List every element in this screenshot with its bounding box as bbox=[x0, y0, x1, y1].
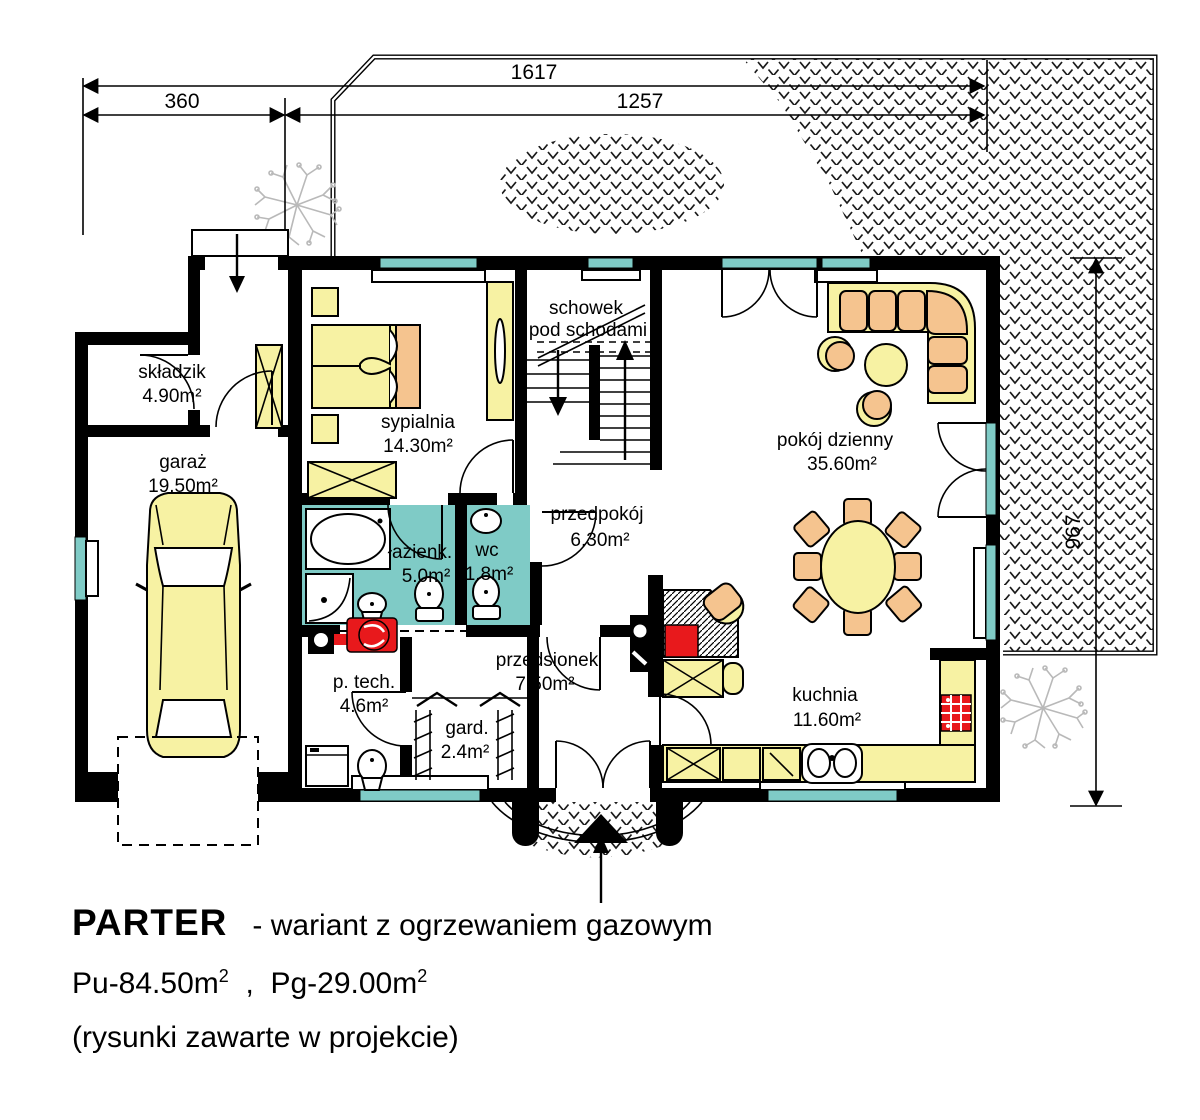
plan-title-level: PARTER bbox=[72, 902, 227, 943]
hall-cabinet bbox=[256, 345, 282, 428]
room-label-skladzik: składzik bbox=[138, 362, 206, 383]
room-area-przedsionek: 7.50m² bbox=[515, 674, 574, 695]
armchair bbox=[857, 391, 891, 426]
room-label-pokoj-dzienny: pokój dzienny bbox=[777, 430, 894, 451]
room-label-kuchnia: kuchnia bbox=[792, 685, 858, 706]
kitchen-sink bbox=[802, 744, 862, 783]
room-area-pokoj-dzienny: 35.60m² bbox=[807, 454, 877, 475]
room-area-skladzik: 4.90m² bbox=[142, 386, 201, 407]
room-label-schowek: schowek bbox=[549, 298, 623, 319]
shower bbox=[306, 574, 353, 623]
usable-area-value: Pu-84.50m bbox=[72, 967, 219, 1000]
tree-icon bbox=[1001, 666, 1087, 748]
room-label-przedpokoj: przedpokój bbox=[551, 504, 644, 525]
room-area-gard: 2.4m² bbox=[441, 742, 490, 763]
room-label-sypialnia: sypialnia bbox=[381, 412, 455, 433]
floor-plan-page: 1617 360 1257 967 bbox=[0, 0, 1200, 1120]
dishwasher bbox=[763, 748, 800, 780]
dimension-top-total: 1617 bbox=[511, 61, 558, 84]
room-label-przedsionek: przedsionek bbox=[496, 650, 599, 671]
room-area-lazienka: 5.0m² bbox=[402, 566, 451, 587]
cooktop bbox=[941, 695, 971, 731]
plan-note: (rysunki zawarte w projekcie) bbox=[72, 1021, 713, 1055]
garden-hatch-ellipse bbox=[500, 134, 724, 234]
room-area-kuchnia: 11.60m² bbox=[793, 710, 861, 731]
dimension-top-left: 360 bbox=[164, 90, 199, 113]
room-area-garaz: 19.50m² bbox=[148, 476, 218, 497]
room-label-lazienka: łazienk. bbox=[388, 542, 452, 563]
bed bbox=[312, 325, 420, 408]
plan-footer: PARTER - wariant z ogrzewaniem gazowym P… bbox=[72, 902, 713, 1055]
room-area-wc: 1.8m² bbox=[465, 564, 514, 585]
area-separator: , bbox=[245, 967, 253, 1000]
car-icon bbox=[136, 493, 251, 757]
room-label-wc: wc bbox=[474, 540, 498, 561]
room-label-p-tech: p. tech. bbox=[333, 672, 395, 693]
coffee-table bbox=[865, 344, 907, 386]
dimension-right-height: 967 bbox=[1062, 514, 1085, 549]
bathtub bbox=[306, 509, 390, 569]
room-label-schowek-2: pod schodami bbox=[529, 320, 647, 341]
nightstand bbox=[312, 288, 338, 316]
dining-table-set bbox=[792, 499, 923, 635]
nightstand bbox=[312, 415, 338, 443]
room-area-sypialnia: 14.30m² bbox=[383, 436, 453, 457]
plan-title: PARTER - wariant z ogrzewaniem gazowym bbox=[72, 902, 713, 944]
tall-cabinet bbox=[487, 282, 513, 420]
room-area-przedpokoj: 6.30m² bbox=[570, 530, 629, 551]
plan-title-variant: - wariant z ogrzewaniem gazowym bbox=[252, 909, 712, 942]
plan-areas: Pu-84.50m2 , Pg-29.00m2 bbox=[72, 966, 713, 1001]
dimension-top-right: 1257 bbox=[617, 90, 664, 113]
garage-area-value: Pg-29.00m bbox=[270, 967, 417, 1000]
room-label-garaz: garaż bbox=[159, 452, 207, 473]
room-area-p-tech: 4.6m² bbox=[340, 696, 389, 717]
entry-porch bbox=[492, 788, 702, 903]
wc-sink bbox=[471, 509, 501, 533]
wardrobe bbox=[308, 462, 396, 498]
kitchen-cabinet bbox=[667, 748, 720, 780]
room-label-gard: gard. bbox=[445, 718, 488, 739]
washing-machine bbox=[306, 746, 348, 786]
